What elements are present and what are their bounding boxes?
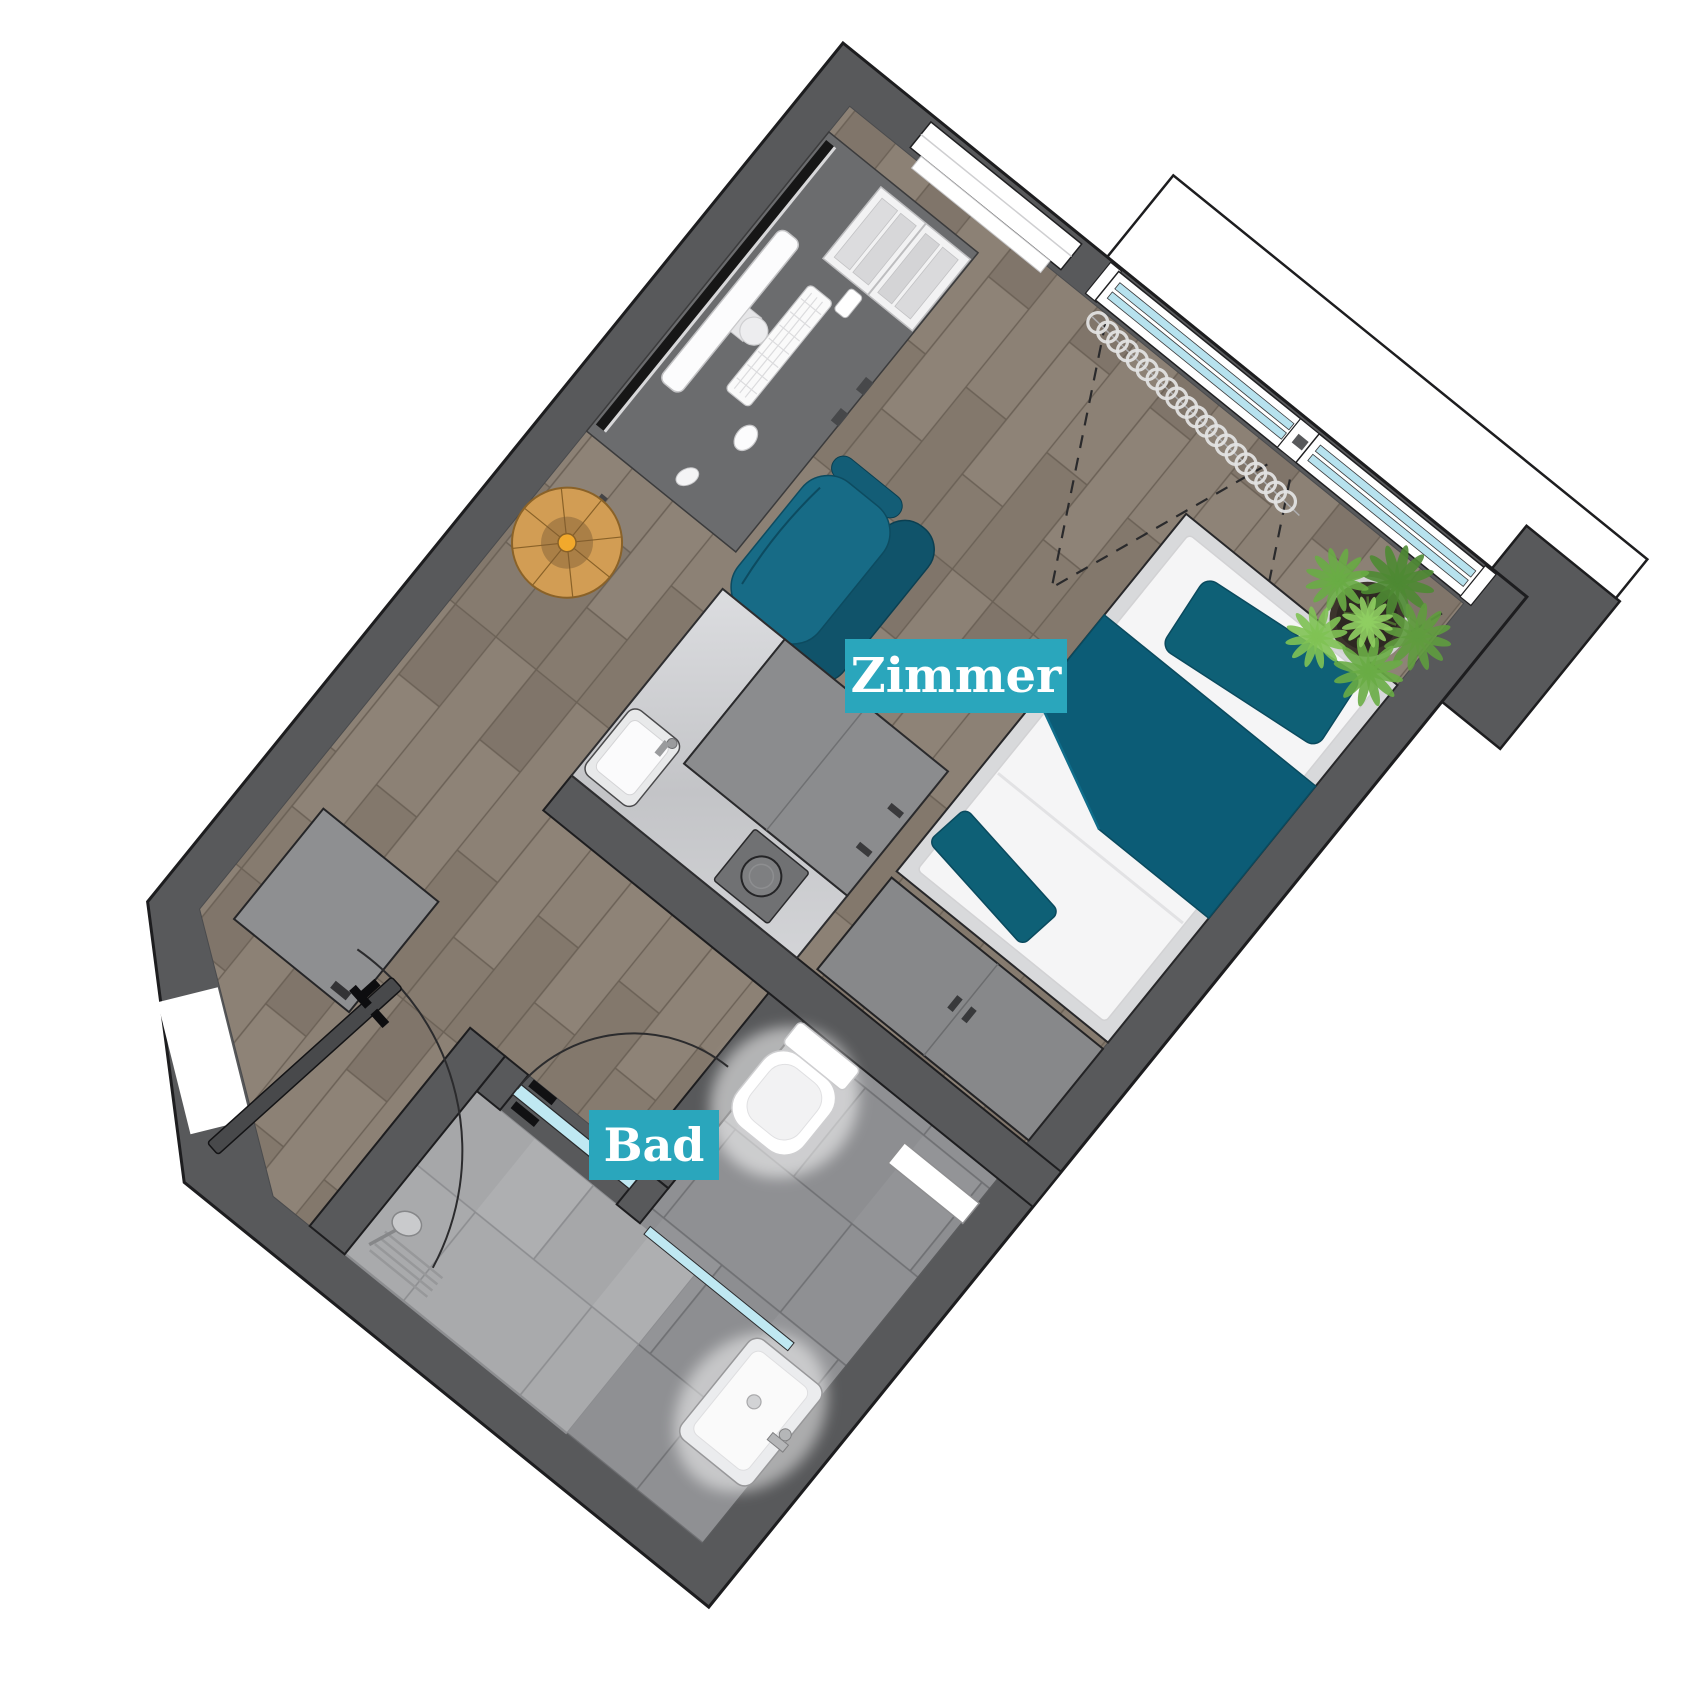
bad-label-text: Bad: [604, 1118, 705, 1172]
bad-label: Bad: [589, 1110, 719, 1180]
zimmer-label-text: Zimmer: [851, 648, 1062, 704]
floorplan-svg: [0, 0, 1700, 1700]
zimmer-label: Zimmer: [845, 639, 1067, 713]
rotated-plan: [25, 43, 1527, 1607]
floorplan-canvas: Zimmer Bad: [0, 0, 1700, 1700]
